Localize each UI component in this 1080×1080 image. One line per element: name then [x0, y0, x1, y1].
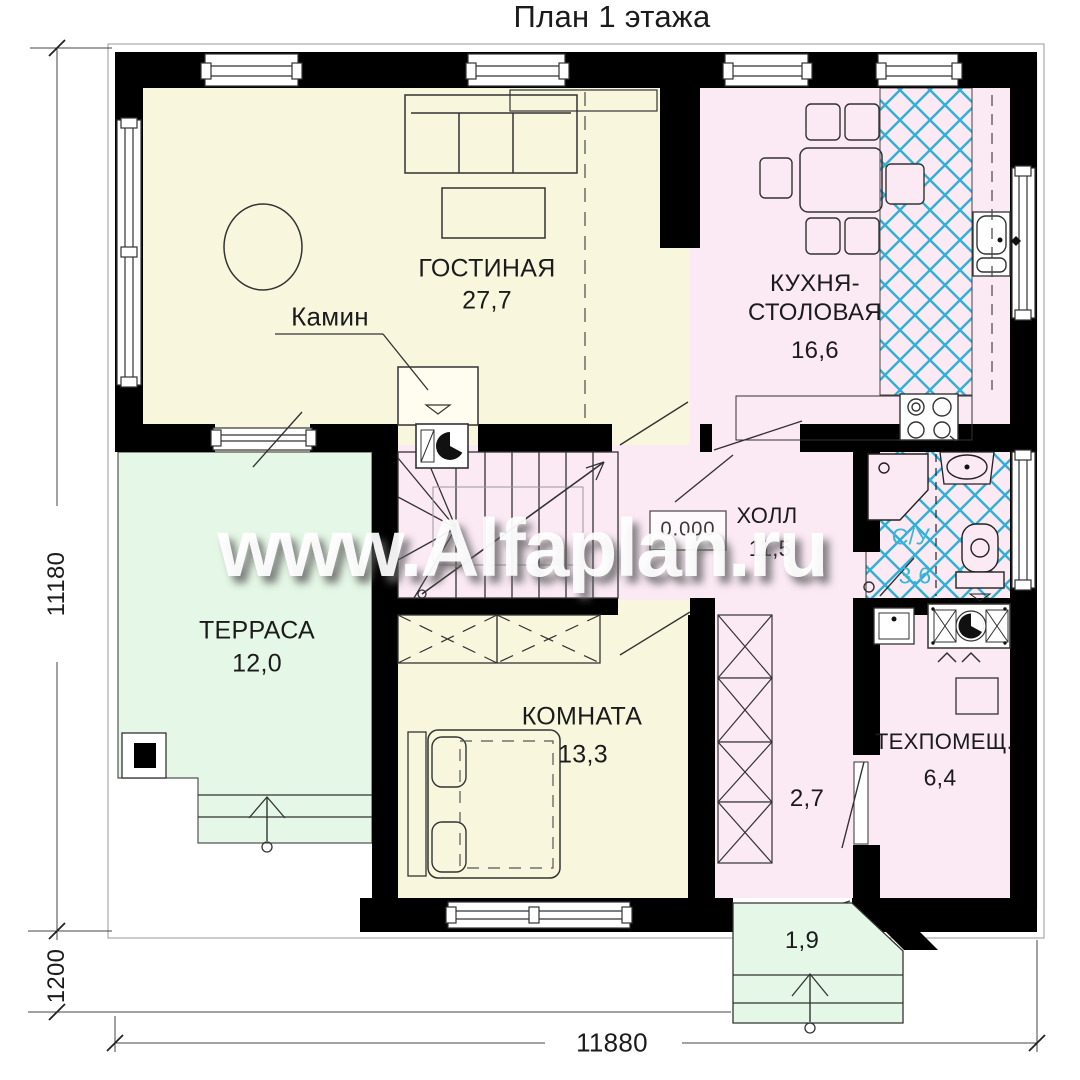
bath-sink — [940, 452, 994, 484]
tech-room-area: 6,4 — [924, 765, 957, 792]
dimension-width-total: 11880 — [576, 1028, 648, 1059]
living-room-label: ГОСТИНАЯ — [418, 255, 555, 284]
floor-plan-page: План 1 этажа ГОСТИНАЯ 27,7 КУХНЯ- СТОЛОВ… — [0, 0, 1080, 1080]
terrace-label: ТЕРРАСА — [199, 617, 315, 646]
fireplace — [398, 367, 478, 425]
page-title: План 1 этажа — [513, 0, 710, 35]
porch-area: 1,9 — [785, 927, 819, 955]
vent-unit — [416, 424, 468, 468]
terrace-post — [122, 733, 166, 778]
kitchen-label-line2: СТОЛОВАЯ — [748, 299, 882, 327]
stove — [900, 394, 958, 441]
tech-room-label: ТЕХПОМЕЩ. — [875, 729, 1013, 755]
kitchen-area: 16,6 — [791, 337, 839, 365]
kitchen-label-line1: КУХНЯ- — [770, 270, 860, 298]
bathroom-label: С/У — [892, 524, 931, 551]
dimension-height-total: 11180 — [43, 552, 71, 617]
vent-shafts — [718, 615, 772, 863]
room-area: 13,3 — [558, 741, 608, 770]
terrace-area: 12,0 — [232, 650, 282, 679]
corridor-area: 2,7 — [790, 785, 824, 813]
dimension-porch-depth: 1200 — [43, 949, 71, 1004]
bathroom-area: 3,6 — [899, 563, 932, 590]
living-room-area: 27,7 — [462, 287, 512, 316]
watermark: www.Alfaplan.ru — [217, 502, 826, 596]
boiler-unit — [928, 604, 1010, 648]
room-label: КОМНАТА — [522, 703, 643, 732]
tech-sink — [874, 608, 914, 644]
fireplace-label: Камин — [291, 302, 369, 333]
